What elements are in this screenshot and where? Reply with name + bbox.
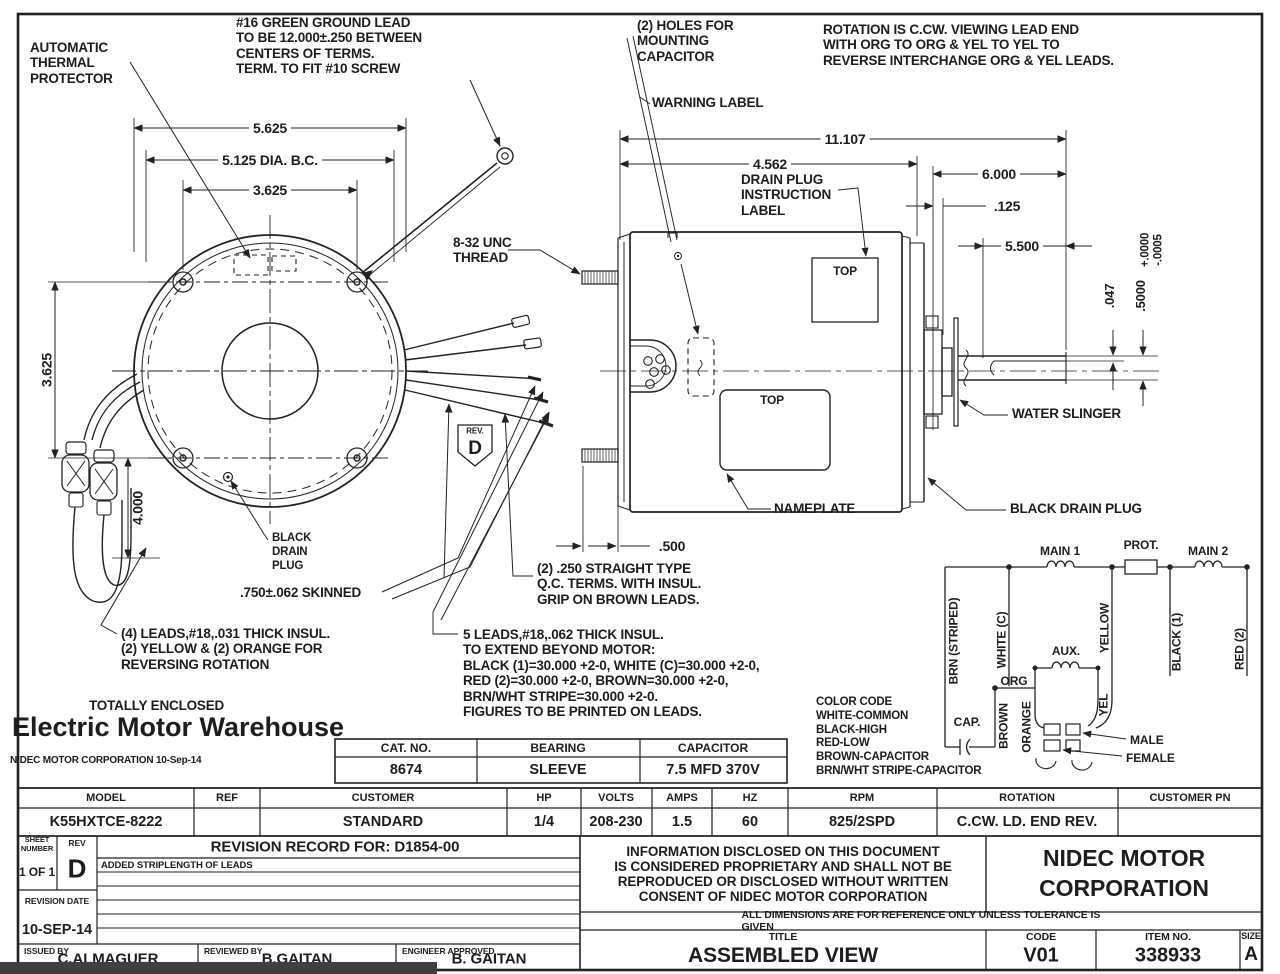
revision-date-label: REVISION DATE [25,896,89,906]
black-drain-plug-note: BLACK DRAIN PLUG [1010,501,1142,516]
top-marker-2: TOP [760,394,784,408]
hp-header: HP [536,792,551,804]
scan-artifact-bar [0,962,437,974]
customer-pn-header: CUSTOMER PN [1149,792,1230,804]
spec-value-bearing: SLEEVE [529,762,586,778]
four-leads-note: (4) LEADS,#18,.031 THICK INSUL. (2) YELL… [121,626,330,672]
size-label: SIZE [1241,931,1261,941]
dim-5625: 5.625 [249,120,291,136]
sheet-number-value: 1 OF 1 [19,865,55,879]
drawing-sheet: AUTOMATIC THERMAL PROTECTOR #16 GREEN GR… [0,0,1280,974]
hp-value: 1/4 [534,814,554,830]
spec-value-capacitor: 7.5 MFD 370V [666,762,760,778]
nameplate-note: NAMEPLATE [774,501,855,516]
rev-label: REV [68,838,85,848]
wiring-schematic [945,560,1250,770]
schematic-aux-label: AUX. [1052,644,1080,658]
dim-047: .047 [1103,284,1117,309]
warning-label-note: WARNING LABEL [652,95,763,110]
tolerance-note: ALL DIMENSIONS ARE FOR REFERENCE ONLY UN… [742,909,1101,933]
drain-plug-instruction-note: DRAIN PLUG INSTRUCTION LABEL [741,172,831,218]
mounting-capacitor-holes-note: (2) HOLES FOR MOUNTING CAPACITOR [637,18,733,64]
schematic-white-label: WHITE (C) [995,612,1008,669]
dim-5000: .5000 [1134,280,1148,312]
ground-lead-note: #16 GREEN GROUND LEAD TO BE 12.000±.250 … [236,15,422,77]
customer-value: STANDARD [343,814,423,830]
revision-date-value: 10-SEP-14 [22,922,92,938]
hz-value: 60 [742,814,758,830]
qc-terms-note: (2) .250 STRAIGHT TYPE Q.C. TERMS. WITH … [537,561,701,607]
engineer-approved-value: B. GAITAN [452,951,527,968]
dim-5125-bc: 5.125 DIA. B.C. [218,152,322,168]
hz-header: HZ [743,792,758,804]
dim-125: .125 [990,198,1024,214]
code-value: V01 [1023,945,1058,968]
dim-5500: 5.500 [1001,238,1043,254]
rotation-value: C.CW. LD. END REV. [957,814,1097,830]
dim-6000: 6.000 [978,166,1020,182]
spec-header-catno: CAT. NO. [381,741,431,755]
customer-header: CUSTOMER [352,792,415,804]
watermark-text: Electric Motor Warehouse [12,712,344,743]
dim-3625-top: 3.625 [249,182,291,198]
schematic-male-label: MALE [1130,733,1164,747]
schematic-black-label: BLACK (1) [1170,613,1183,671]
spec-header-bearing: BEARING [530,741,585,755]
model-header: MODEL [86,792,126,804]
size-value: A [1244,944,1258,966]
rotation-note: ROTATION IS C.CW. VIEWING LEAD END WITH … [823,22,1114,68]
schematic-brown-label: BROWN [997,703,1010,749]
schematic-cap-label: CAP. [954,715,981,729]
dim-3625-left: 3.625 [39,353,54,387]
proprietary-notice: INFORMATION DISCLOSED ON THIS DOCUMENT I… [614,844,952,904]
amps-header: AMPS [666,792,698,804]
schematic-female-label: FEMALE [1126,751,1175,765]
dim-4000: 4.000 [130,491,145,525]
spec-value-catno: 8674 [390,762,422,778]
rev-flag-letter: D [468,438,482,460]
schematic-prot-label: PROT. [1124,538,1159,552]
company-name: NIDEC MOTOR CORPORATION [1039,844,1209,904]
amps-value: 1.5 [672,814,692,830]
rpm-header: RPM [850,792,874,804]
black-drain-plug-left-note: BLACK DRAIN PLUG [272,532,311,573]
schematic-org-label: ORG [1000,674,1027,688]
sheet-number-label: SHEET NUMBER [21,835,53,853]
spec-header-capacitor: CAPACITOR [678,741,748,755]
model-value: K55HXTCE-8222 [50,814,163,830]
side-view-dimensions [556,130,1158,552]
schematic-orange-label: ORANGE [1020,701,1033,752]
rotation-header: ROTATION [999,792,1055,804]
dim-4562: 4.562 [749,156,791,172]
corp-date-note: NIDEC MOTOR CORPORATION 10-Sep-14 [10,755,201,766]
skinned-note: .750±.062 SKINNED [240,585,361,600]
unc-thread-note: 8-32 UNC THREAD [453,235,511,266]
schematic-yel-label: YEL [1097,694,1110,717]
ref-header: REF [216,792,238,804]
five-leads-note: 5 LEADS,#18,.062 THICK INSUL. TO EXTEND … [463,627,759,719]
item-no-label: ITEM NO. [1145,931,1191,943]
dim-5000-tolerance: +.0000 -.0005 [1139,233,1164,267]
title-label: TITLE [769,931,798,943]
volts-value: 208-230 [589,814,642,830]
volts-header: VOLTS [598,792,634,804]
top-marker-1: TOP [833,265,857,279]
drawing-title: ASSEMBLED VIEW [688,944,878,968]
dim-500: .500 [655,538,689,554]
item-no-value: 338933 [1135,945,1201,968]
code-label: CODE [1026,931,1056,943]
schematic-main1-label: MAIN 1 [1040,544,1080,558]
schematic-main2-label: MAIN 2 [1188,544,1228,558]
schematic-brn-striped-label: BRN (STRIPED) [947,598,960,685]
auto-thermal-protector-note: AUTOMATIC THERMAL PROTECTOR [30,40,113,86]
reviewed-by-label: REVIEWED BY [204,946,262,956]
rev-flag-label: REV. [466,427,484,436]
rev-value: D [68,854,87,885]
water-slinger-note: WATER SLINGER [1012,406,1121,421]
schematic-red-label: RED (2) [1233,628,1246,670]
schematic-yellow-label: YELLOW [1098,603,1111,653]
revision-entry: ADDED STRIPLENGTH OF LEADS [101,860,253,871]
color-code-note: COLOR CODE WHITE-COMMON BLACK-HIGH RED-L… [816,696,981,779]
dim-11107: 11.107 [821,131,870,147]
revision-record-header: REVISION RECORD FOR: D1854-00 [211,839,460,856]
rpm-value: 825/2SPD [829,814,895,830]
